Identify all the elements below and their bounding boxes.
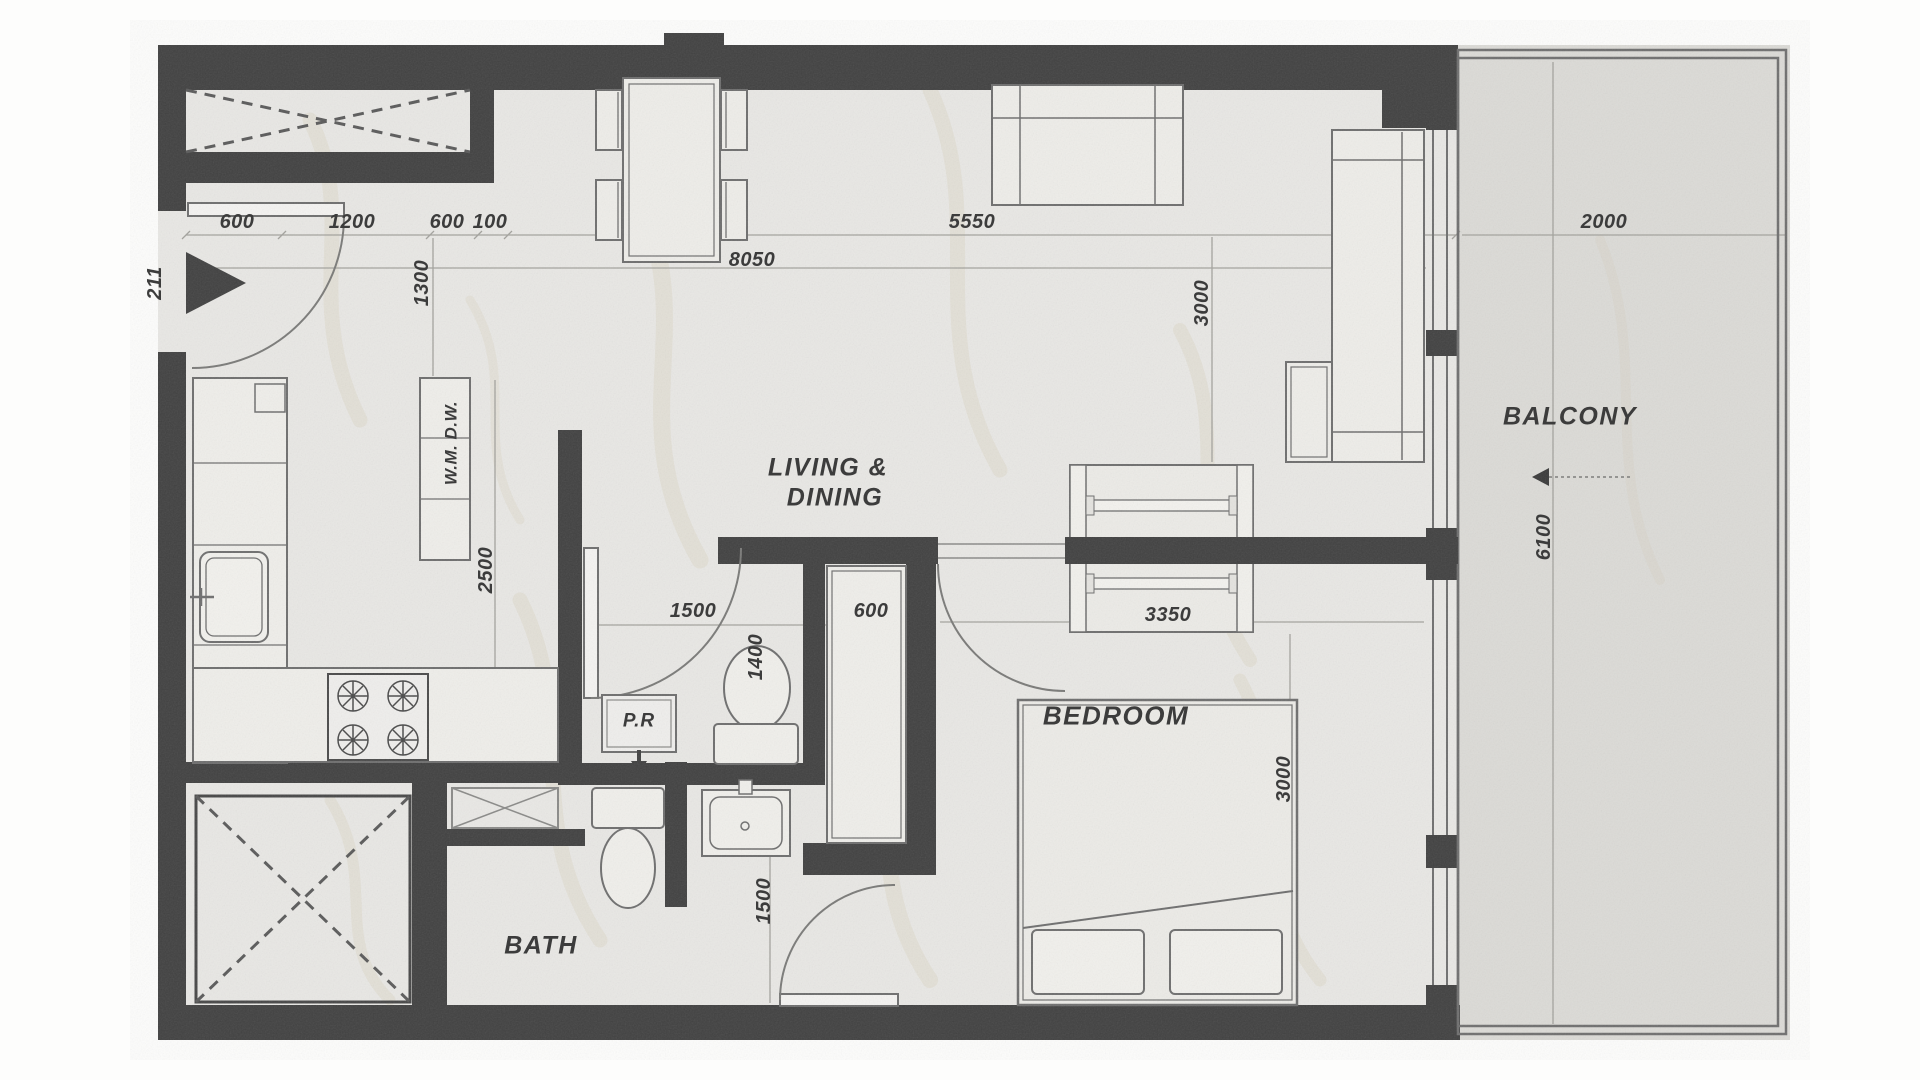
dim-wardrobe-width: 3350 (1145, 604, 1192, 626)
dim-living-top: 5550 (949, 211, 996, 233)
dim-entry-offset: 211 (144, 266, 166, 299)
noise-overlay (130, 20, 1810, 1060)
label-room-bath: BATH (504, 932, 578, 960)
dim-living-depth: 3000 (1191, 280, 1213, 327)
dim-pr-depth: 1400 (745, 634, 767, 681)
dim-hall-width: 1500 (753, 878, 775, 925)
dim-closet-depth: 600 (854, 600, 889, 622)
label-washer-dishwasher: W.M. D.W. (443, 401, 462, 485)
dim-top-100: 100 (473, 211, 508, 233)
label-room-pr: P.R (623, 712, 655, 733)
dim-kitchen-passage: 1300 (411, 260, 433, 307)
floor-plan-page: LIVING & DINING BEDROOM BATH BALCONY P.R… (0, 0, 1920, 1080)
dim-top-600a: 600 (220, 211, 255, 233)
dim-top-1200: 1200 (329, 211, 376, 233)
label-room-bedroom: BEDROOM (1043, 702, 1189, 731)
label-room-living-line1: LIVING & (768, 454, 888, 482)
label-room-balcony: BALCONY (1503, 403, 1637, 431)
dim-balcony-length: 6100 (1533, 514, 1555, 561)
dim-kitchen-run: 2500 (475, 547, 497, 594)
dim-pr-width: 1500 (670, 600, 717, 622)
label-room-living-line2: DINING (787, 484, 884, 512)
floor-plan-drawing (0, 0, 1920, 1080)
dim-balcony-width: 2000 (1581, 211, 1628, 233)
dim-living-overall: 8050 (729, 249, 776, 271)
dim-bedroom-depth: 3000 (1273, 756, 1295, 803)
dim-top-600b: 600 (430, 211, 465, 233)
